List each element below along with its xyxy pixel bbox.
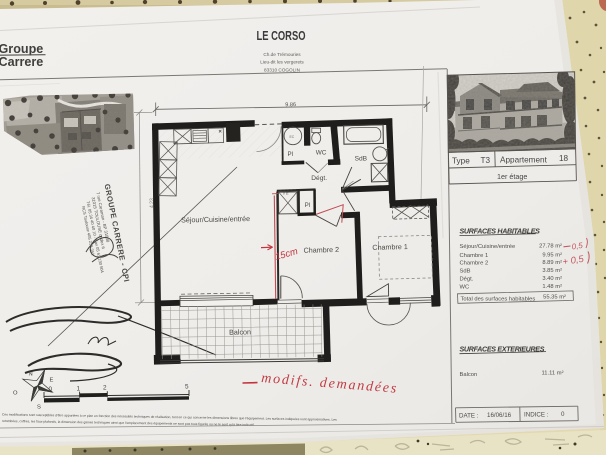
svg-text:Appartement: Appartement xyxy=(500,155,548,164)
svg-text:T3: T3 xyxy=(481,156,491,165)
svg-text:0,5: 0,5 xyxy=(571,241,584,252)
svg-text:16/06/16: 16/06/16 xyxy=(487,412,512,419)
svg-text:1er étage: 1er étage xyxy=(497,172,527,181)
svg-text:1.48 m²: 1.48 m² xyxy=(542,284,562,290)
svg-text:Pl: Pl xyxy=(288,151,294,158)
svg-text:Chambre 1: Chambre 1 xyxy=(460,253,489,259)
svg-text:Chambre 2: Chambre 2 xyxy=(303,245,339,255)
svg-text:S: S xyxy=(37,405,41,411)
svg-text:N: N xyxy=(29,372,33,378)
svg-text:Séjour/Cuisine/entrée: Séjour/Cuisine/entrée xyxy=(181,214,250,224)
svg-text:Balcon: Balcon xyxy=(229,327,251,336)
svg-text:9.86: 9.86 xyxy=(285,102,296,108)
svg-text:27.78 m²: 27.78 m² xyxy=(539,244,562,250)
svg-text:Pl: Pl xyxy=(305,202,311,209)
svg-text:0: 0 xyxy=(49,386,53,393)
svg-text:Chambre 1: Chambre 1 xyxy=(372,242,408,252)
svg-text:5: 5 xyxy=(185,383,189,390)
svg-text:18: 18 xyxy=(559,154,569,163)
svg-text:Séjour/Cuisine/entrée: Séjour/Cuisine/entrée xyxy=(460,244,516,250)
svg-text:2: 2 xyxy=(103,385,107,392)
svg-text:3.40 m²: 3.40 m² xyxy=(542,276,562,282)
svg-text:9.95 m²: 9.95 m² xyxy=(542,253,562,259)
svg-text:E: E xyxy=(50,378,54,384)
svg-text:Groupe: Groupe xyxy=(0,42,43,56)
svg-text:11.11 m²: 11.11 m² xyxy=(541,370,563,376)
svg-text:SdB: SdB xyxy=(460,268,471,274)
svg-text:Carrere: Carrere xyxy=(0,55,43,69)
svg-text:EC: EC xyxy=(290,135,295,139)
svg-text:8.89 m²: 8.89 m² xyxy=(542,260,562,266)
svg-text:Type: Type xyxy=(452,157,470,166)
svg-text:INDICE :: INDICE : xyxy=(524,412,549,419)
svg-text:WC: WC xyxy=(316,149,327,156)
svg-text:55.35 m²: 55.35 m² xyxy=(543,294,566,300)
svg-text:Dégt.: Dégt. xyxy=(460,277,474,283)
svg-text:Y E: Y E xyxy=(283,192,289,196)
svg-text:Ch.de Trémouries: Ch.de Trémouries xyxy=(263,52,301,57)
svg-text:1: 1 xyxy=(77,385,81,392)
svg-text:0: 0 xyxy=(561,411,565,418)
svg-text:O: O xyxy=(13,391,18,397)
svg-text:SdB: SdB xyxy=(355,156,368,163)
svg-text:83310 COGOLIN: 83310 COGOLIN xyxy=(264,67,300,72)
svg-text:Total des surfaces habitables: Total des surfaces habitables xyxy=(461,297,536,303)
svg-text:DATE :: DATE : xyxy=(459,412,479,419)
svg-text:Chambre 2: Chambre 2 xyxy=(460,260,489,266)
svg-text:LE CORSO: LE CORSO xyxy=(257,29,306,43)
svg-text:Balcon: Balcon xyxy=(460,372,478,378)
svg-text:WC: WC xyxy=(460,285,470,291)
svg-text:3.85 m²: 3.85 m² xyxy=(542,268,562,274)
svg-text:Lieu-dit les vergerets: Lieu-dit les vergerets xyxy=(260,60,304,65)
svg-text:Dégt.: Dégt. xyxy=(311,175,327,182)
